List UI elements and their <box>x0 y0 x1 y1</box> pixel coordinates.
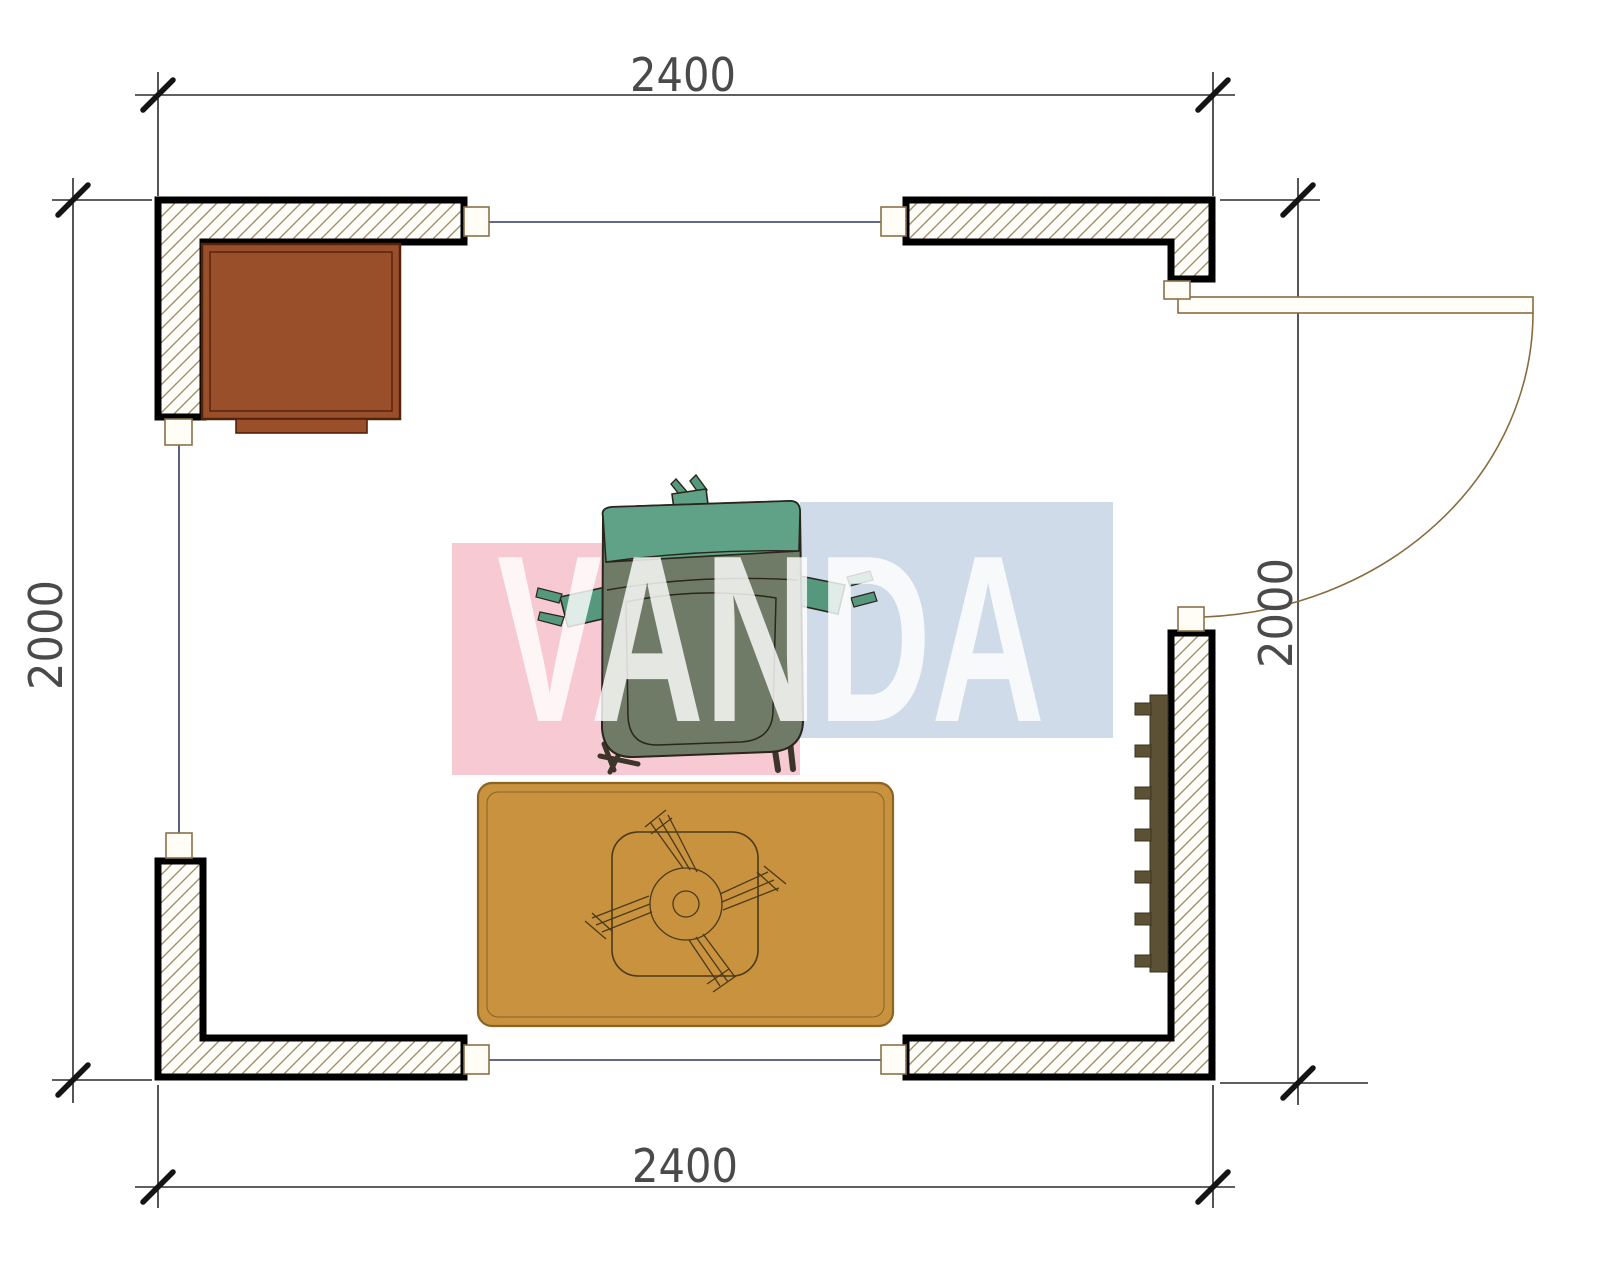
floor-plan-canvas: 2400 2400 2000 2000 VANDA <box>0 0 1600 1280</box>
rug-and-table <box>478 783 893 1026</box>
jamb <box>881 207 906 236</box>
door-leaf <box>1178 297 1533 313</box>
floor-plan-drawing: 2400 2400 2000 2000 VANDA <box>0 0 1600 1280</box>
door <box>1178 297 1533 617</box>
radiator-fins <box>1135 703 1151 967</box>
base-hub <box>673 891 699 917</box>
radiator-fin <box>1135 703 1151 715</box>
radiator-fin <box>1135 829 1151 841</box>
radiator-body <box>1150 695 1168 972</box>
wall-top-right <box>906 200 1212 279</box>
radiator-fin <box>1135 871 1151 883</box>
jamb-door-hinge <box>1164 281 1190 299</box>
jamb <box>166 833 192 858</box>
radiator-fin <box>1135 955 1151 967</box>
dimension-text-right: 2000 <box>1249 558 1303 668</box>
dimension-text-bottom: 2400 <box>632 1139 738 1193</box>
wall-bottom-left <box>158 861 464 1077</box>
desk <box>202 244 400 433</box>
radiator-fin <box>1135 913 1151 925</box>
radiator-fin <box>1135 787 1151 799</box>
jamb <box>881 1045 906 1074</box>
jamb-door-strike <box>1178 607 1204 631</box>
dimension-text-top: 2400 <box>630 48 736 102</box>
desk-top <box>202 244 400 419</box>
jamb <box>464 207 489 236</box>
dimension-text-left: 2000 <box>19 580 73 690</box>
jamb <box>165 419 192 445</box>
jamb <box>464 1045 489 1074</box>
radiator-fin <box>1135 745 1151 757</box>
watermark-text: VANDA <box>497 507 1045 772</box>
desk-front-edge <box>236 419 367 433</box>
radiator <box>1135 695 1168 972</box>
